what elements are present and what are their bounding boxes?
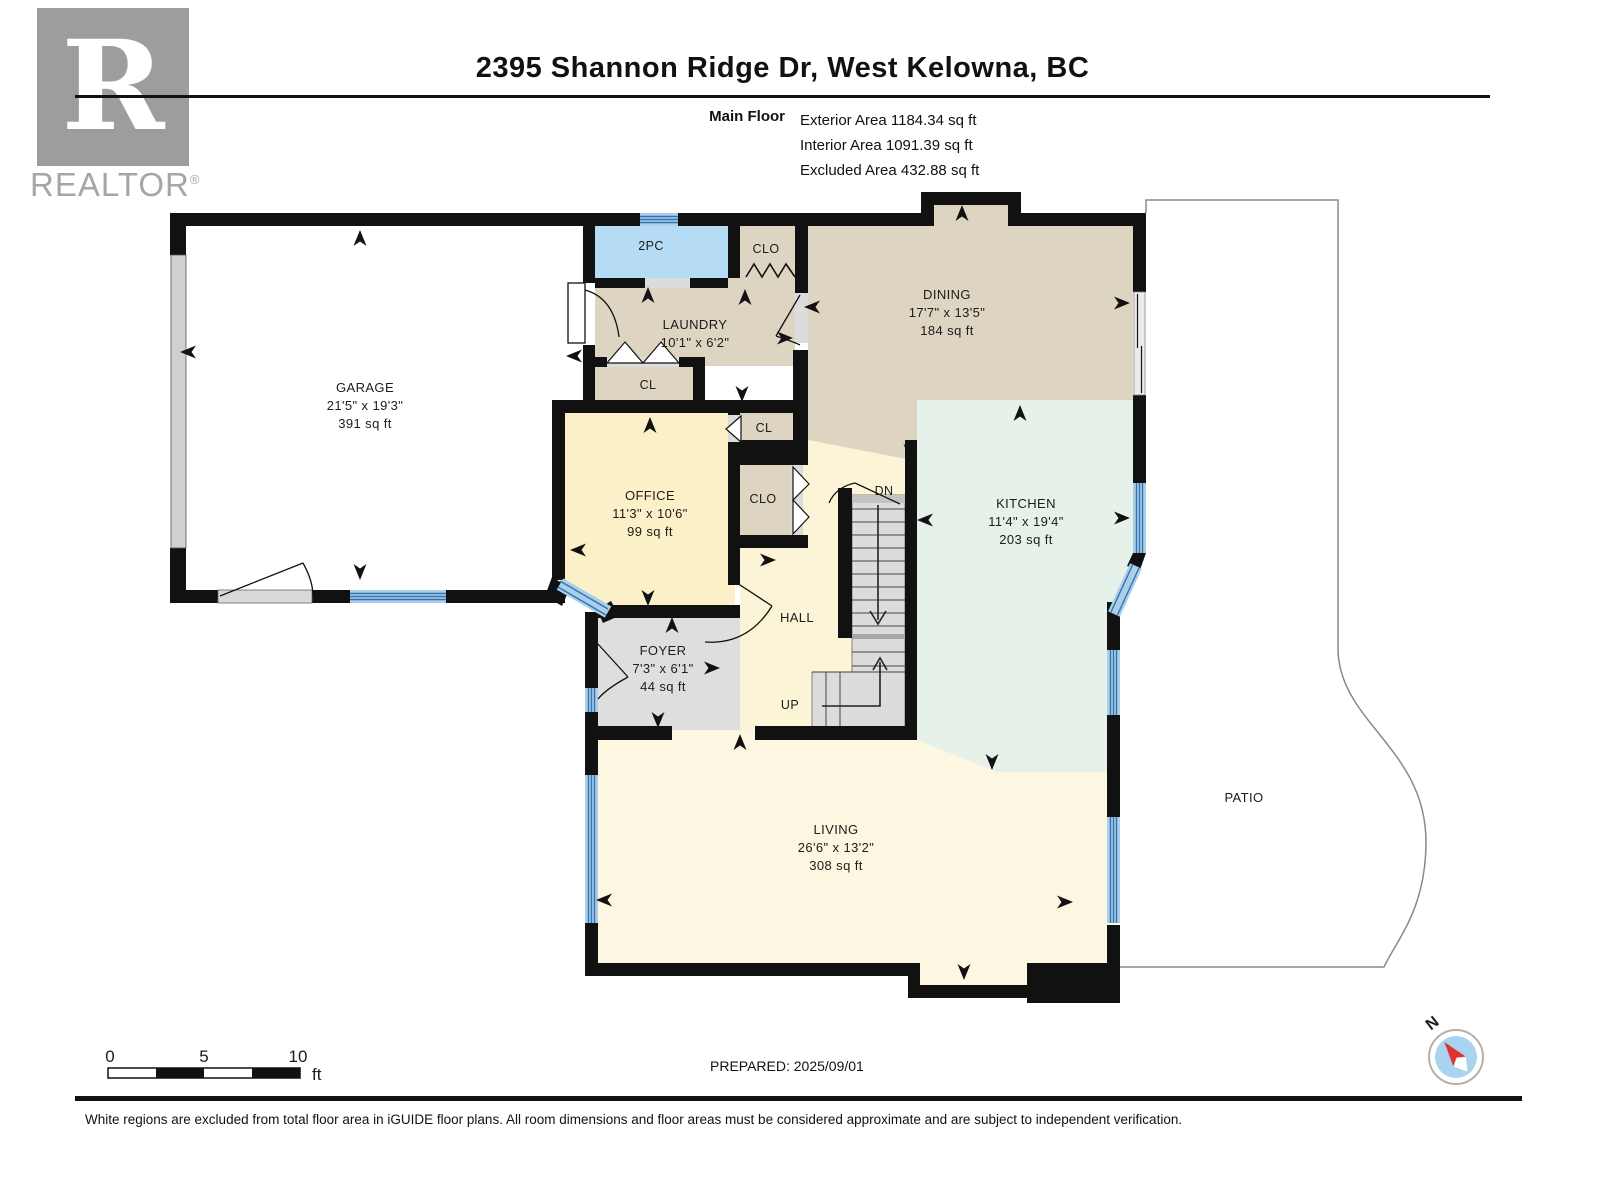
window (640, 213, 678, 226)
office-dims: 11'3" x 10'6" (612, 506, 688, 521)
stat-interior-area: Interior Area 1091.39 sq ft (800, 133, 979, 158)
window (1107, 650, 1120, 715)
kitchen-area: 203 sq ft (999, 532, 1052, 547)
living-dims: 26'6" x 13'2" (798, 840, 875, 855)
stat-excluded-area: Excluded Area 432.88 sq ft (800, 158, 979, 183)
page-title: 2395 Shannon Ridge Dr, West Kelowna, BC (75, 52, 1490, 85)
window (585, 775, 598, 923)
area-stats: Exterior Area 1184.34 sq ft Interior Are… (800, 108, 979, 183)
stairs-up-label: UP (781, 698, 799, 712)
dining-label: DINING (923, 287, 971, 302)
garage-area: 391 sq ft (338, 416, 391, 431)
registered-mark: ® (190, 172, 201, 187)
camera-arrow (736, 386, 749, 402)
window (1107, 817, 1120, 923)
garage-label: GARAGE (336, 380, 394, 395)
compass-north-label: N (1423, 1013, 1443, 1034)
garage-entry-door (568, 283, 585, 343)
prepared-date: PREPARED: 2025/09/01 (710, 1058, 864, 1074)
office-area: 99 sq ft (627, 524, 673, 539)
realtor-brand: REALTOR (30, 166, 190, 203)
kitchen-dims: 11'4" x 19'4" (988, 514, 1064, 529)
floor-plan-page: GARAGE 21'5" x 19'3" 391 sq ft 2PC CLO L… (0, 0, 1600, 1200)
foyer-label: FOYER (640, 643, 687, 658)
clo-hall-label: CLO (750, 492, 777, 506)
doorway-2pc (645, 278, 690, 288)
dining-dims: 17'7" x 13'5" (909, 305, 986, 320)
cl-office-label: CL (756, 421, 773, 435)
stairs-down-label: DN (875, 484, 894, 498)
2pc-label: 2PC (638, 239, 664, 253)
living-area: 308 sq ft (809, 858, 862, 873)
realtor-logo: R (37, 8, 189, 166)
scale-tick-0: 0 (105, 1047, 114, 1066)
disclaimer-text: White regions are excluded from total fl… (85, 1112, 1182, 1127)
realtor-logo-letter: R (61, 25, 164, 149)
laundry-dims: 10'1" x 6'2" (661, 335, 730, 350)
garage-door (171, 255, 186, 548)
footer-divider (75, 1096, 1522, 1101)
window (350, 590, 446, 603)
patio-label: PATIO (1224, 790, 1263, 805)
garage-swing-door (218, 590, 312, 603)
compass: N (1423, 1013, 1483, 1084)
room-2pc (595, 226, 728, 281)
floor-label: Main Floor (615, 108, 785, 125)
dining-area: 184 sq ft (920, 323, 973, 338)
cl-laundry-label: CL (640, 378, 657, 392)
window (1133, 483, 1146, 553)
office-label: OFFICE (625, 488, 675, 503)
laundry-label: LAUNDRY (663, 317, 728, 332)
window (585, 688, 598, 712)
foyer-dims: 7'3" x 6'1" (632, 661, 693, 676)
patio-outline (1120, 200, 1426, 967)
hall-label: HALL (780, 610, 814, 625)
garage-dims: 21'5" x 19'3" (327, 398, 404, 413)
kitchen-label: KITCHEN (996, 496, 1056, 511)
title-divider (75, 95, 1490, 98)
scale-bar: 0 5 10 ft (105, 1047, 321, 1084)
stat-exterior-area: Exterior Area 1184.34 sq ft (800, 108, 979, 133)
realtor-logo-text: REALTOR® (30, 166, 200, 204)
clo-top-label: CLO (753, 242, 780, 256)
room-kitchen (917, 400, 1140, 772)
sliding-door (1134, 292, 1145, 395)
scale-tick-5: 5 (199, 1047, 208, 1066)
living-label: LIVING (813, 822, 858, 837)
scale-tick-10: 10 (289, 1047, 308, 1066)
foyer-area: 44 sq ft (640, 679, 686, 694)
scale-unit: ft (312, 1065, 322, 1084)
